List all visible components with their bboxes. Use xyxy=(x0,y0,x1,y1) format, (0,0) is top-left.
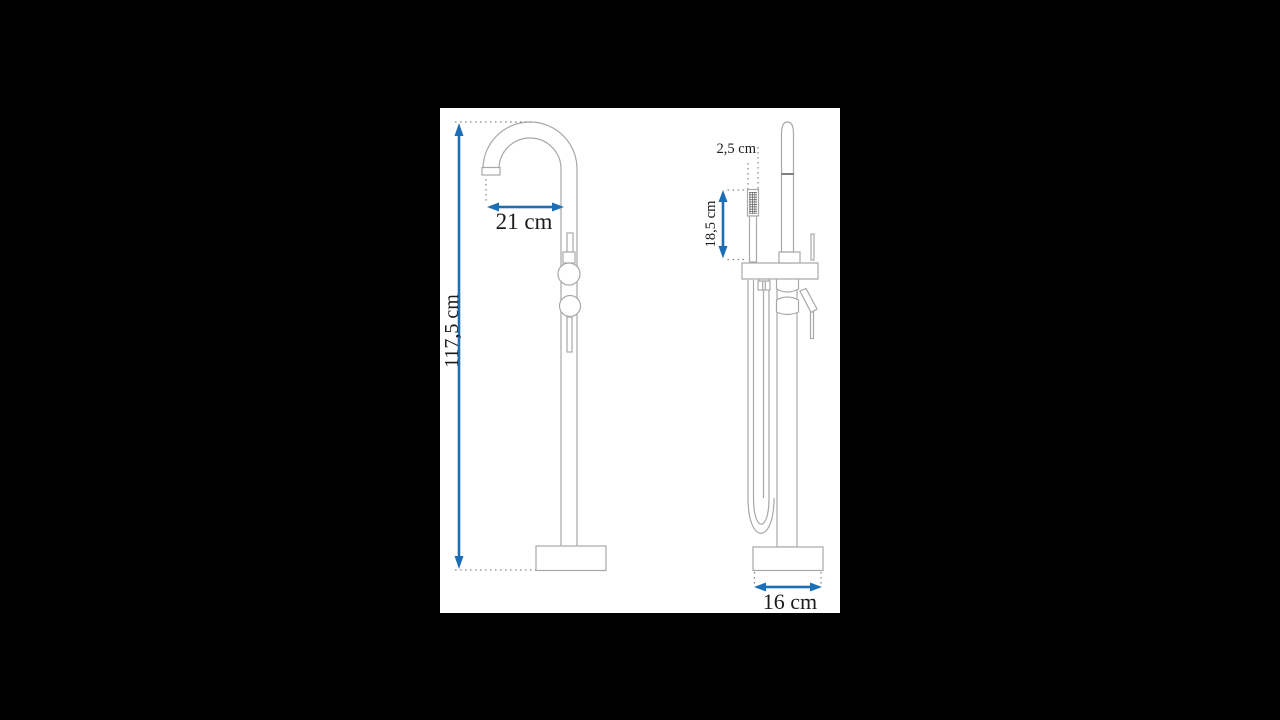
hand-shower-length-dimension-label: 18,5 cm xyxy=(704,194,720,254)
dotted-reference-lines xyxy=(455,122,821,584)
faucet-technical-drawing xyxy=(440,108,840,613)
diverter-rod xyxy=(567,233,573,252)
hose-nut xyxy=(758,281,770,290)
hand-shower-width-dimension-label: 2,5 cm xyxy=(666,142,756,160)
side-view xyxy=(742,122,823,571)
total-height-dimension-label: 117,5 cm xyxy=(441,276,463,386)
black-background: 117,5 cm 21 cm 2,5 cm 18,5 cm 16 cm xyxy=(0,0,1280,720)
side-column-lower xyxy=(777,279,797,547)
temperature-rod xyxy=(811,234,814,260)
mixer-lever xyxy=(800,289,817,313)
diagram-panel: 117,5 cm 21 cm 2,5 cm 18,5 cm 16 cm xyxy=(440,108,840,613)
gooseneck-spout-outer xyxy=(483,122,577,547)
side-collar xyxy=(779,252,800,263)
dimension-arrows xyxy=(455,123,823,592)
side-column-upper xyxy=(782,122,794,252)
valve-lower xyxy=(777,297,799,315)
shower-hose-loop xyxy=(748,280,774,533)
front-base xyxy=(536,546,606,571)
side-base xyxy=(753,547,823,571)
spout-reach-dimension-label: 21 cm xyxy=(479,209,569,235)
spout-outlet xyxy=(482,168,500,176)
lower-knob-rod xyxy=(567,317,572,352)
hand-shower xyxy=(748,190,759,263)
upper-knob xyxy=(558,263,580,285)
front-view xyxy=(482,122,606,571)
valve-upper xyxy=(777,279,799,293)
gooseneck-spout-inner xyxy=(499,138,561,547)
side-body xyxy=(742,263,818,279)
lower-knob xyxy=(560,296,581,317)
diverter-collar xyxy=(563,252,575,263)
mixer-lever-rod xyxy=(811,312,814,339)
base-diameter-dimension-label: 16 cm xyxy=(745,590,835,613)
